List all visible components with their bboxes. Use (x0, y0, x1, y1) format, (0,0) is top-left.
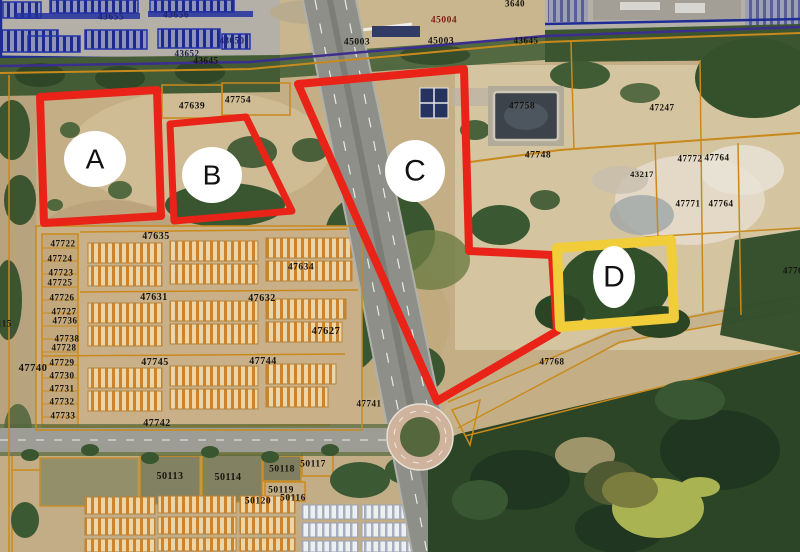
region-d-letter: D (603, 261, 625, 294)
region-b: B (170, 117, 292, 221)
region-b-letter: B (203, 160, 222, 191)
annotation-regions: ABCD (0, 0, 800, 552)
region-c-outline (298, 69, 557, 401)
region-c: C (298, 69, 557, 401)
aerial-parcel-map: 4365543656436504365243645450034500445003… (0, 0, 800, 552)
region-a-letter: A (86, 144, 105, 175)
region-c-letter: C (404, 155, 426, 188)
region-a: A (40, 90, 161, 223)
region-d: D (557, 240, 674, 327)
